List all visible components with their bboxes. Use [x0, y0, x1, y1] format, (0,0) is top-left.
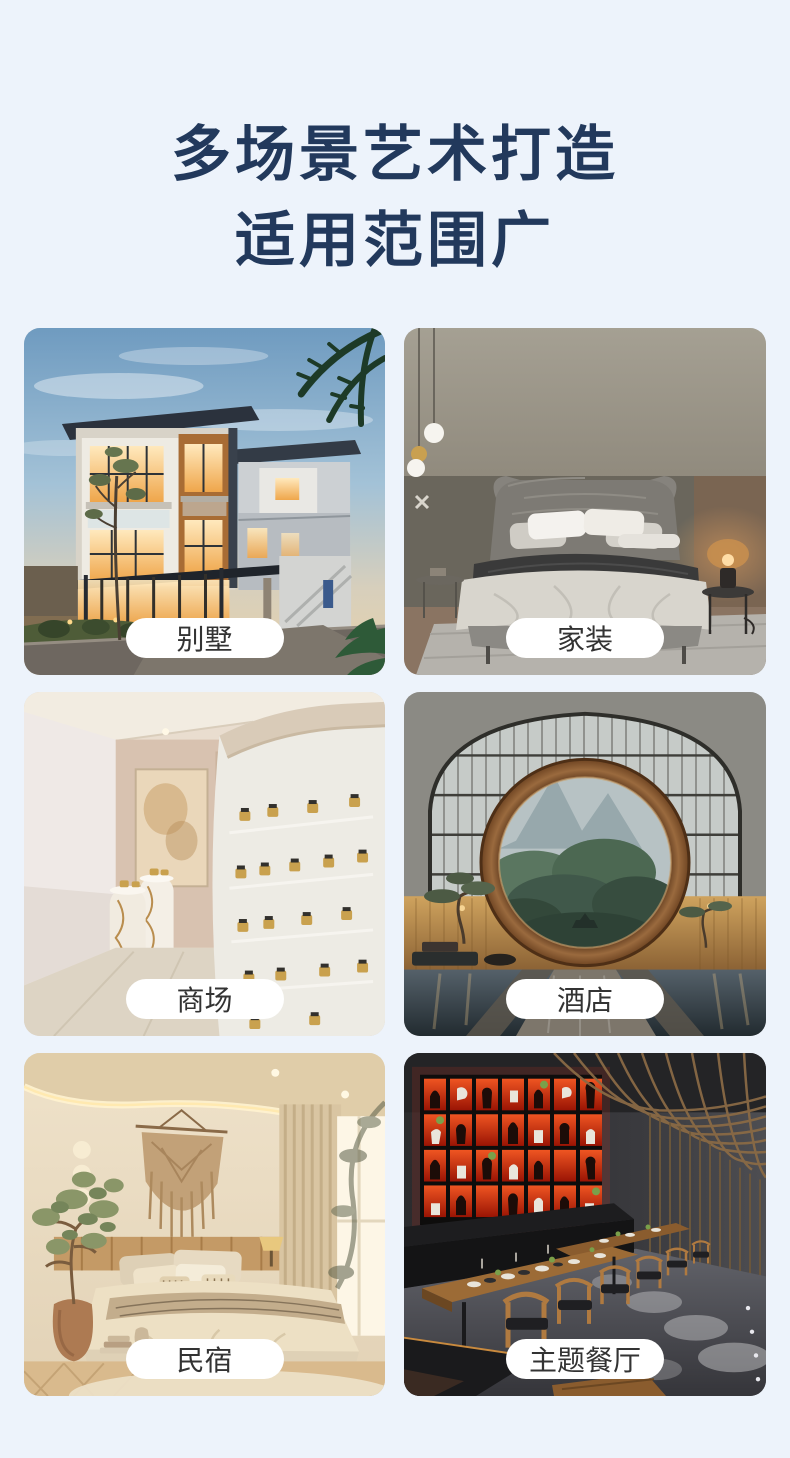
card-label-theme-restaurant: 主题餐厅 — [506, 1339, 664, 1379]
card-homestay: 民宿 — [24, 1053, 385, 1396]
page-title-line2: 适用范围广 — [0, 198, 790, 284]
card-home-decor: 家装 — [404, 328, 766, 675]
scene-card-grid: 别墅 — [24, 328, 766, 1396]
card-hotel: 酒店 — [404, 692, 766, 1036]
card-villa: 别墅 — [24, 328, 385, 675]
card-label-villa: 别墅 — [126, 618, 284, 658]
card-label-mall: 商场 — [126, 979, 284, 1019]
promo-page: 多场景艺术打造 适用范围广 — [0, 0, 790, 1458]
card-label-hotel: 酒店 — [506, 979, 664, 1019]
page-title: 多场景艺术打造 适用范围广 — [0, 112, 790, 284]
card-label-home-decor: 家装 — [506, 618, 664, 658]
card-mall: 商场 — [24, 692, 385, 1036]
card-theme-restaurant: 主题餐厅 — [404, 1053, 766, 1396]
card-label-homestay: 民宿 — [126, 1339, 284, 1379]
page-title-line1: 多场景艺术打造 — [0, 112, 790, 198]
